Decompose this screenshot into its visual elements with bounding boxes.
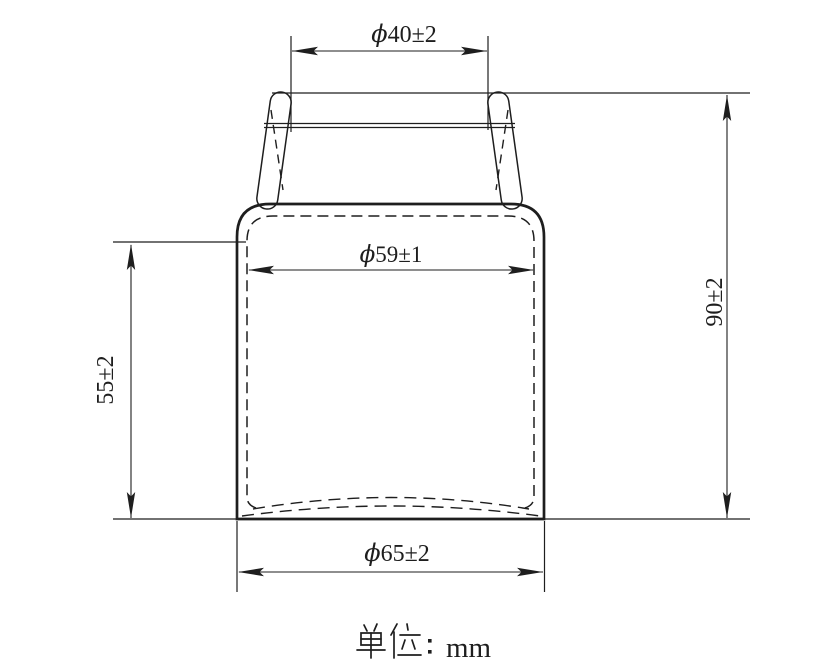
dim-overall-height-label: 90±2 [702, 277, 728, 326]
technical-drawing: ϕ40±2 ϕ59±1 55±2 90±2 ϕ65±2 [0, 0, 829, 668]
unit-value-label: mm [446, 632, 492, 664]
dim-inner-height-label: 55±2 [93, 355, 119, 404]
dim-value: 65±2 [381, 541, 430, 567]
cjk-glyph-wei [391, 624, 421, 658]
base-arc-upper-dashed [253, 498, 529, 510]
rim-right-lug-dashed-centerline [496, 110, 508, 190]
unit-caption: mm [357, 624, 492, 664]
rim-left-lug-dashed-centerline [271, 110, 283, 190]
diameter-symbol: ϕ [364, 539, 380, 567]
dim-inner-diameter-group [248, 266, 534, 274]
cjk-glyph-dan [357, 624, 385, 658]
dim-neck-diameter-label: ϕ40±2 [371, 20, 437, 48]
drawing-canvas: ϕ40±2 ϕ59±1 55±2 90±2 ϕ65±2 [0, 0, 829, 668]
dim-inner-height-group [113, 242, 246, 518]
diameter-symbol: ϕ [371, 20, 387, 48]
dim-outer-diameter-label: ϕ65±2 [364, 539, 430, 567]
diameter-symbol: ϕ [360, 242, 376, 268]
dim-inner-diameter-label: ϕ59±1 [360, 242, 423, 268]
dim-value: 40±2 [388, 22, 437, 48]
rim-right-lug [486, 91, 523, 211]
rim-left-lug [255, 91, 292, 211]
dim-value: 59±1 [375, 242, 422, 267]
dim-neck-diameter-group [291, 36, 488, 132]
base-arc-lower-dashed [242, 506, 540, 516]
fullwidth-colon-glyph [428, 639, 432, 654]
jar-outline-group [113, 91, 750, 519]
